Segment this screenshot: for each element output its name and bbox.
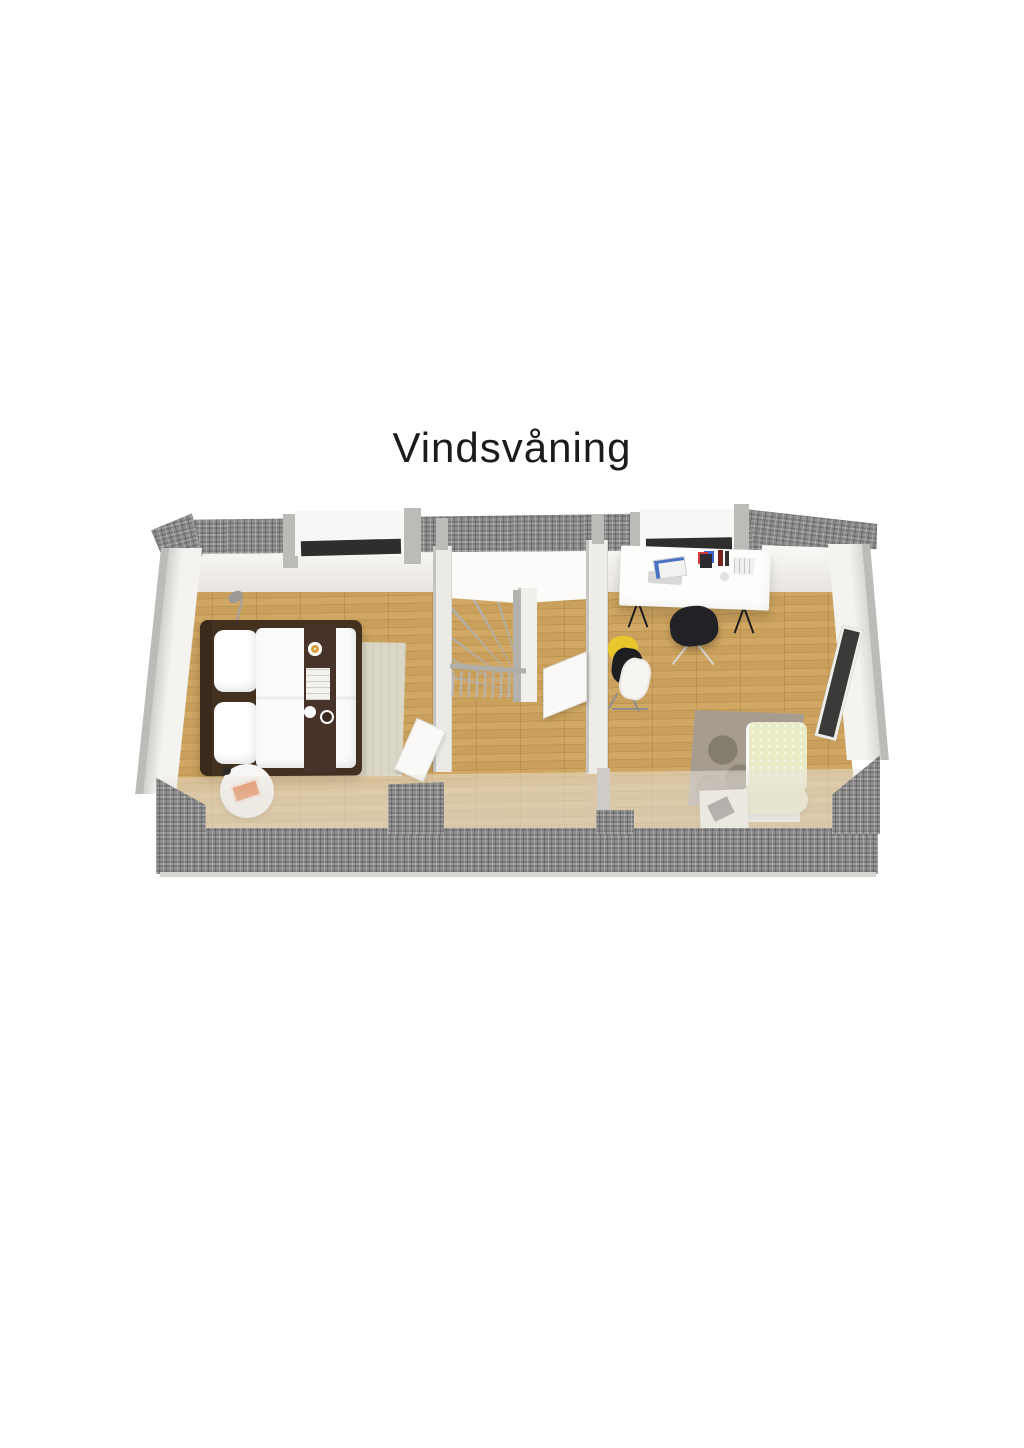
wall-hall-office-cap xyxy=(592,514,604,544)
dormer-window-left xyxy=(283,506,423,570)
bottle xyxy=(725,551,729,566)
breakfast-plate xyxy=(308,642,322,656)
pencil-cup xyxy=(700,554,712,568)
double-bed xyxy=(200,620,362,776)
headboard xyxy=(200,620,212,776)
bottle xyxy=(718,550,723,566)
floorplan-3d xyxy=(0,0,1024,1448)
eaves-fascia-edge xyxy=(160,872,876,877)
tiled-eaves-patch xyxy=(596,810,634,834)
wall-hall-office xyxy=(586,540,608,774)
drinking-glass xyxy=(720,572,729,581)
book-stack xyxy=(734,558,755,575)
tiled-eaves xyxy=(156,828,878,874)
pillow xyxy=(214,630,258,692)
stair-balusters xyxy=(451,671,526,704)
side-table-leg xyxy=(222,766,231,775)
dormer-post xyxy=(734,504,749,556)
clothes-rack-bar xyxy=(612,708,648,710)
magazine-on-bed xyxy=(306,668,330,700)
dormer-window-opening xyxy=(301,539,401,557)
wall-bedroom-hall-cap xyxy=(436,518,448,550)
floorplan-page: Vindsvåning xyxy=(0,0,1024,1448)
tiled-eaves-patch xyxy=(388,780,444,834)
pillow xyxy=(214,702,258,764)
coffee-cup-dark xyxy=(320,710,334,724)
dormer-post xyxy=(404,508,421,564)
coffee-cup-white xyxy=(304,706,316,718)
white-desk xyxy=(619,545,771,610)
